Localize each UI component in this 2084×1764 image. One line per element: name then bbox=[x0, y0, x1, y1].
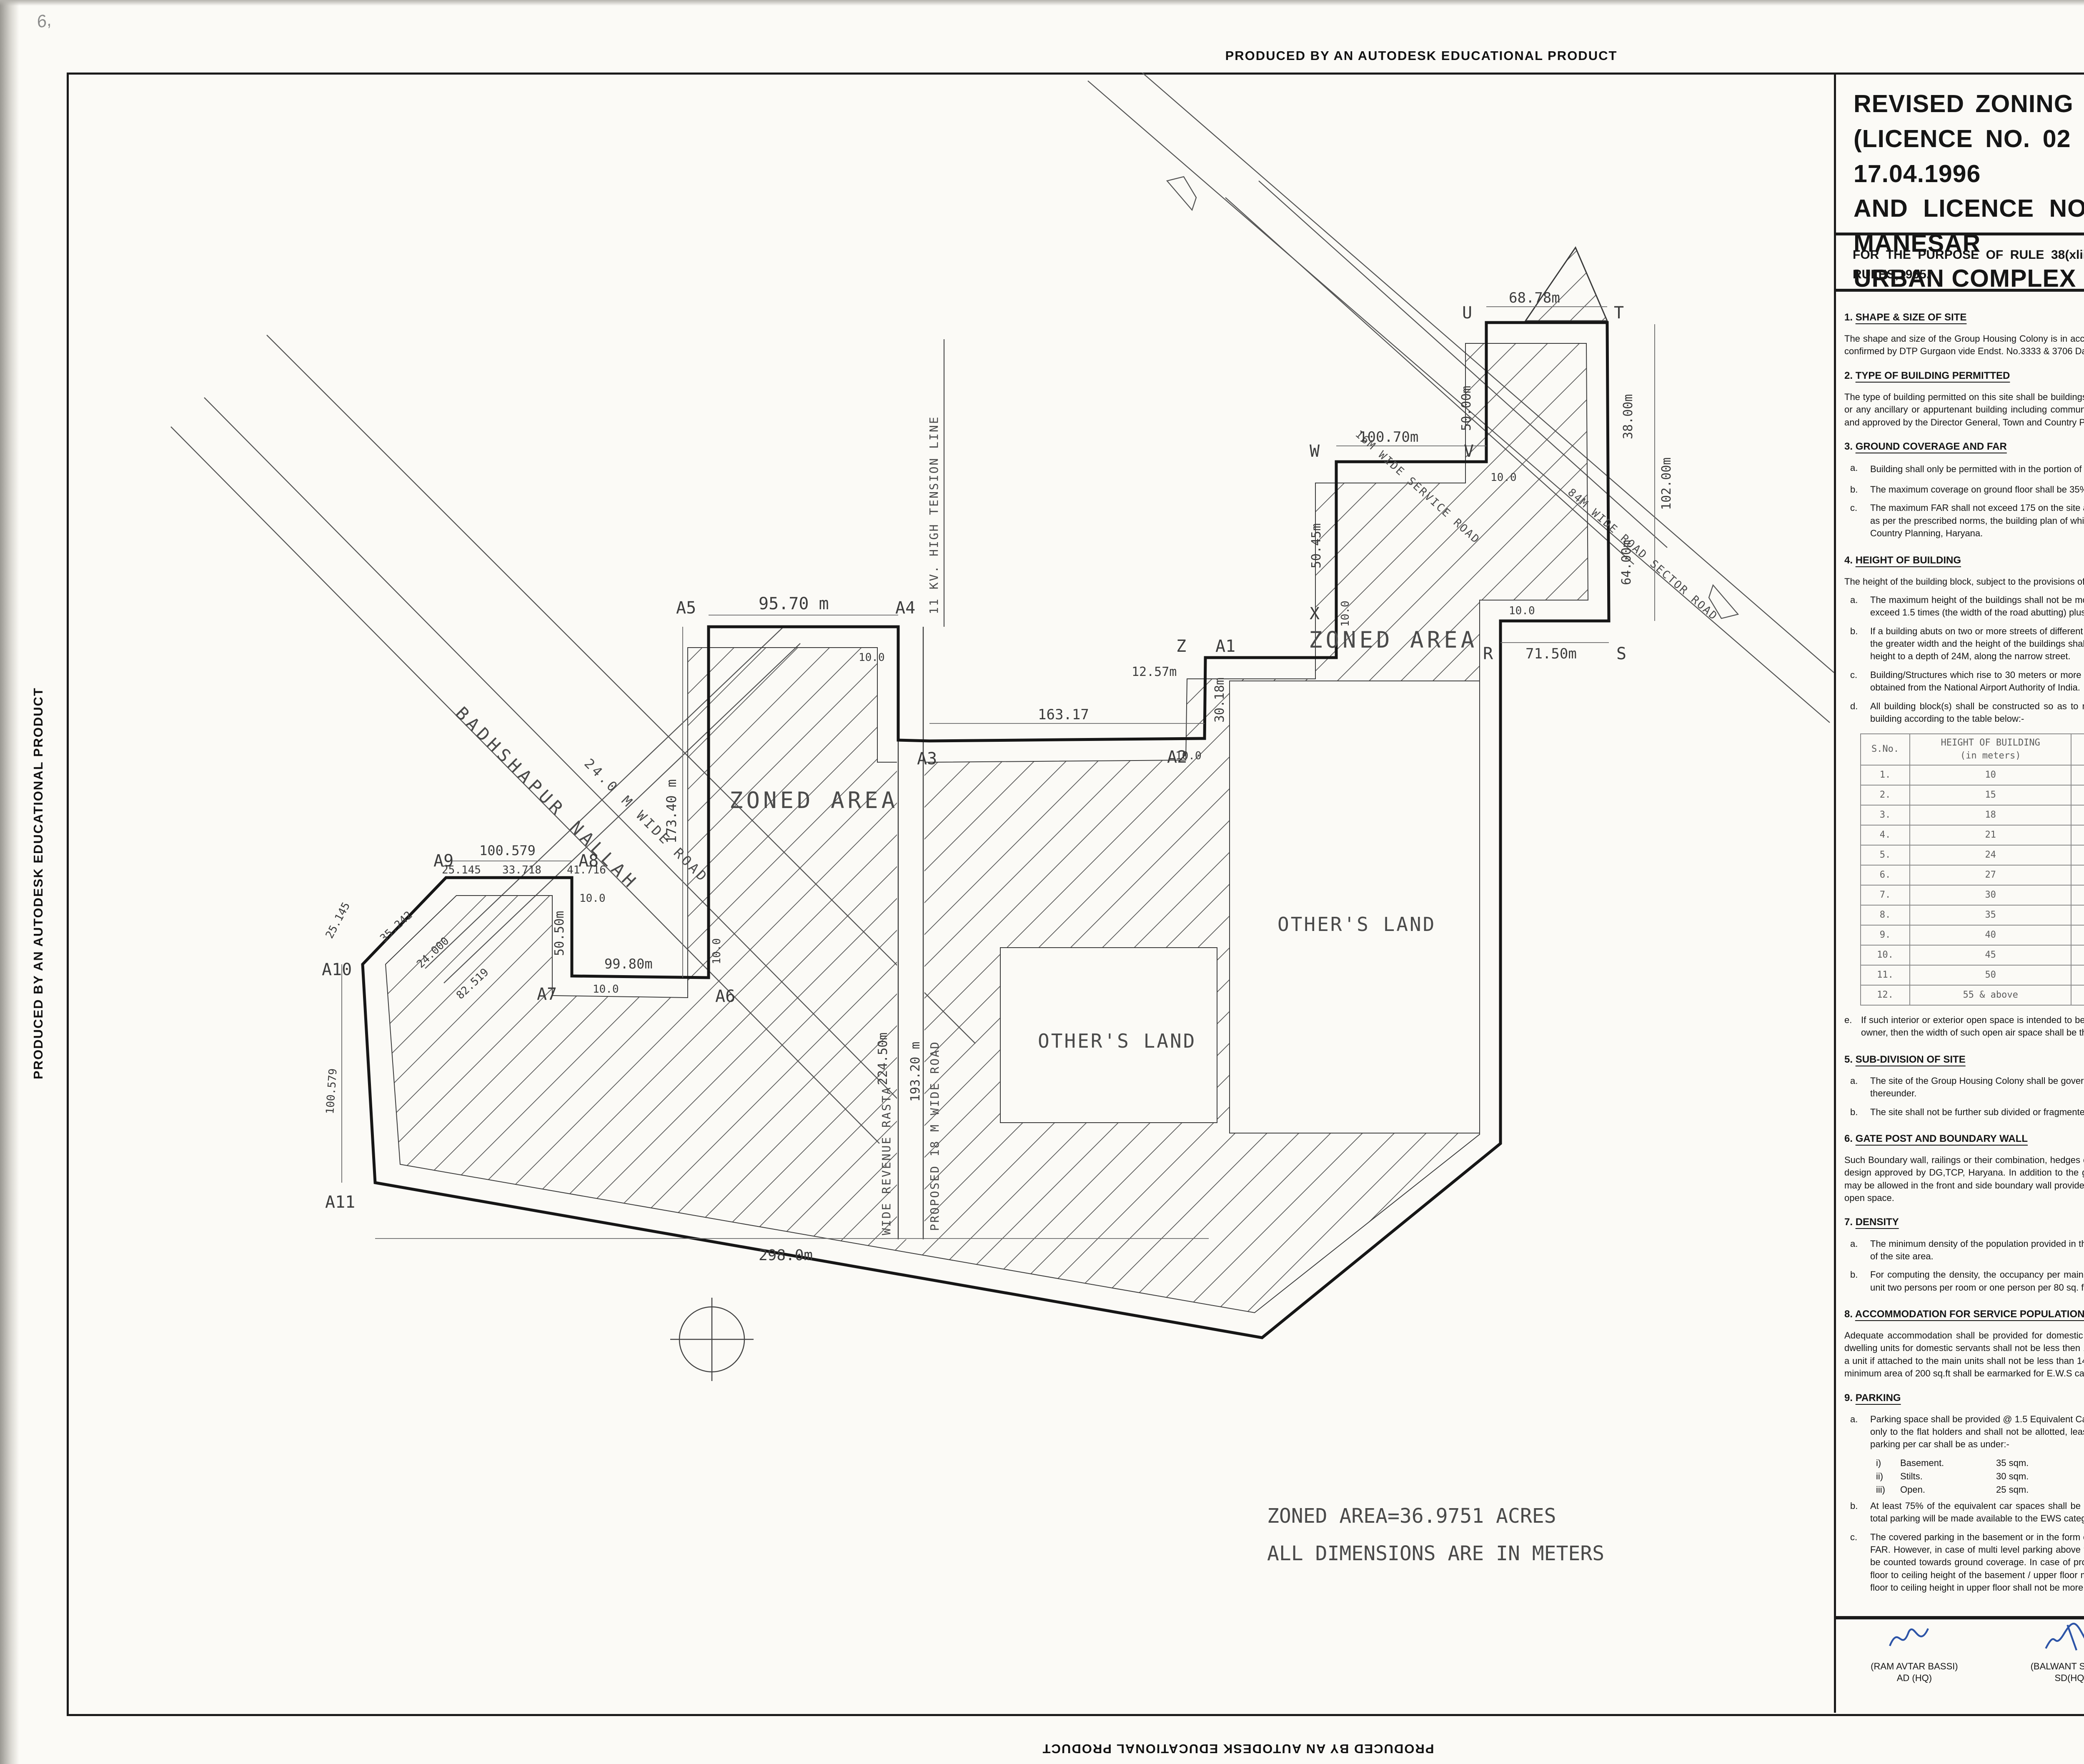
setback-label: 10.0 bbox=[711, 938, 723, 964]
section-1: 1. SHAPE & SIZE OF SITE The shape and si… bbox=[1844, 310, 2084, 358]
scan-artifact bbox=[0, 0, 19, 1764]
proposed-road-corridor bbox=[897, 627, 924, 1239]
point-t: T bbox=[1614, 303, 1624, 323]
point-v: V bbox=[1464, 442, 1474, 461]
point-a3: A3 bbox=[917, 749, 937, 768]
dim-298-0: 298.0m bbox=[759, 1247, 813, 1264]
divider bbox=[1836, 289, 2084, 292]
table-row: 11.5014 bbox=[1861, 965, 2084, 985]
dim-95-70: 95.70 m bbox=[759, 594, 829, 613]
signatory-title: SD(HQ) bbox=[1993, 1673, 2084, 1684]
purpose-statement: FOR THE PURPOSE OF RULE 38(xlii) AND 48 … bbox=[1836, 235, 2084, 289]
section-paragraph: The type of building permitted on this s… bbox=[1844, 391, 2084, 429]
others-land-label: OTHER'S LAND bbox=[1038, 1030, 1196, 1052]
dim-224-50: 224.50m bbox=[876, 1033, 890, 1085]
section-3: 3. GROUND COVERAGE AND FAR a. Building s… bbox=[1844, 440, 2084, 543]
table-row: 9.4012 bbox=[1861, 925, 2084, 945]
point-a10: A10 bbox=[322, 960, 352, 979]
point-a7: A7 bbox=[537, 985, 557, 1004]
table-row: 12.55 & above16 bbox=[1861, 985, 2084, 1005]
section-heading: GATE POST AND BOUNDARY WALL bbox=[1856, 1133, 2028, 1144]
dim-50-50: 50.50m bbox=[552, 911, 567, 956]
dim-25-145-v: 25.145 bbox=[323, 900, 353, 941]
point-a4: A4 bbox=[895, 598, 915, 618]
proposed-road-label: PROPOSED 18 M WIDE ROAD bbox=[928, 1041, 942, 1231]
dim-100-70: 100.70m bbox=[1359, 429, 1418, 445]
setback-label: 10.0 bbox=[1490, 471, 1517, 484]
point-x: X bbox=[1310, 604, 1320, 623]
table-row: 2.155 bbox=[1861, 785, 2084, 805]
point-w: W bbox=[1310, 442, 1320, 461]
notes-column-left: 1. SHAPE & SIZE OF SITE The shape and si… bbox=[1844, 300, 2084, 1612]
section-4: 4. HEIGHT OF BUILDING The height of the … bbox=[1844, 553, 2084, 1042]
signatory-name: (RAM AVTAR BASSI) bbox=[1836, 1661, 1993, 1672]
parking-sub-item: ii)Stilts.30 sqm. bbox=[1844, 1470, 2084, 1483]
dim-30-18: 30.18m bbox=[1212, 678, 1227, 723]
zoned-area-label: ZONED AREA bbox=[1309, 627, 1478, 653]
table-row: 4.217 bbox=[1861, 825, 2084, 845]
dim-50-45: 50.45m bbox=[1309, 523, 1324, 568]
table-row: 3.186 bbox=[1861, 805, 2084, 825]
point-r: R bbox=[1483, 644, 1493, 663]
section-paragraph: The shape and size of the Group Housing … bbox=[1844, 333, 2084, 358]
signatory-name: (BALWANT SINGH) bbox=[1993, 1661, 2084, 1672]
section-heading: SUB-DIVISION OF SITE bbox=[1856, 1054, 1966, 1065]
section-heading: DENSITY bbox=[1856, 1216, 1899, 1228]
others-land-label: OTHER'S LAND bbox=[1277, 913, 1436, 936]
point-u: U bbox=[1462, 303, 1472, 323]
setback-label: 10.0 bbox=[579, 892, 606, 905]
dim-12-57: 12.57m bbox=[1132, 665, 1177, 679]
scan-artifact bbox=[0, 0, 2084, 6]
setback-label: 10.0 bbox=[859, 651, 885, 664]
section-6: 6. GATE POST AND BOUNDARY WALL Such Boun… bbox=[1844, 1132, 2084, 1205]
dim-102-00: 102.00m bbox=[1659, 458, 1674, 510]
section-heading: ACCOMMODATION FOR SERVICE POPULATION bbox=[1855, 1309, 2084, 1320]
buildable-zone-spike bbox=[1525, 248, 1607, 321]
dim-68-78: 68.78m bbox=[1509, 290, 1560, 306]
divider bbox=[1836, 233, 2084, 235]
dim-38-00: 38.00m bbox=[1621, 394, 1636, 439]
section-9: 9. PARKING a.Parking space shall be prov… bbox=[1844, 1391, 2084, 1597]
setback-table: S.No. HEIGHT OF BUILDING(in meters) SET … bbox=[1860, 733, 2084, 1006]
zoned-area-label: ZONED AREA bbox=[729, 787, 898, 813]
table-row: 1.103 bbox=[1861, 765, 2084, 785]
dim-99-80: 99.80m bbox=[604, 956, 653, 972]
table-row: 6.279 bbox=[1861, 865, 2084, 885]
point-a6: A6 bbox=[715, 987, 735, 1006]
section-heading: SHAPE & SIZE OF SITE bbox=[1856, 312, 1967, 323]
table-row: 10.4513 bbox=[1861, 945, 2084, 965]
survey-symbol bbox=[670, 1298, 754, 1381]
setback-label: 10.0 bbox=[593, 983, 619, 996]
signature-squiggle bbox=[2031, 1618, 2084, 1661]
section-7: 7. DENSITY a.The minimum density of the … bbox=[1844, 1215, 2084, 1296]
autodesk-banner-bottom: PRODUCED BY AN AUTODESK EDUCATIONAL PROD… bbox=[1009, 1741, 1467, 1756]
point-a2: A2 bbox=[1167, 748, 1187, 767]
table-row: 7.3010 bbox=[1861, 885, 2084, 905]
section-2: 2. TYPE OF BUILDING PERMITTED The type o… bbox=[1844, 369, 2084, 429]
setback-label: 10.0 bbox=[1509, 605, 1535, 617]
point-a9: A9 bbox=[433, 851, 453, 871]
signature-cell: (RAM AVTAR BASSI) AD (HQ) bbox=[1836, 1616, 1993, 1713]
dim-100-579: 100.579 bbox=[479, 843, 536, 858]
section-heading: PARKING bbox=[1856, 1392, 1901, 1404]
autodesk-banner-left: PRODUCED BY AN AUTODESK EDUCATIONAL PROD… bbox=[31, 687, 46, 1079]
dim-71-50: 71.50m bbox=[1525, 646, 1577, 662]
signatory-title: AD (HQ) bbox=[1836, 1673, 1993, 1684]
point-a11: A11 bbox=[325, 1193, 355, 1212]
signature-block: (RAM AVTAR BASSI) AD (HQ) (BALWANT SINGH… bbox=[1836, 1616, 2084, 1713]
revenue-rasta-label: WIDE REVENUE RASTA bbox=[879, 1086, 893, 1235]
table-row: 5.248 bbox=[1861, 845, 2084, 865]
dimensions-note: ALL DIMENSIONS ARE IN METERS bbox=[1267, 1542, 1604, 1565]
section-8: 8. ACCOMMODATION FOR SERVICE POPULATION … bbox=[1844, 1307, 2084, 1380]
section-heading: HEIGHT OF BUILDING bbox=[1856, 555, 1961, 566]
notes-panel: REVISED ZONING PLAN OF GROUP HOUSING COL… bbox=[1834, 73, 2084, 1713]
pencil-mark: 6, bbox=[35, 10, 53, 32]
section-5: 5. SUB-DIVISION OF SITE a.The site of th… bbox=[1844, 1053, 2084, 1121]
point-a8: A8 bbox=[579, 851, 599, 871]
dim-163-17: 163.17 bbox=[1038, 706, 1089, 723]
zoned-area-total: ZONED AREA=36.9751 ACRES bbox=[1267, 1504, 1556, 1528]
signature-cell: (BALWANT SINGH) SD(HQ) bbox=[1993, 1616, 2084, 1713]
table-row: 8.3511 bbox=[1861, 905, 2084, 925]
section-heading: TYPE OF BUILDING PERMITTED bbox=[1856, 370, 2010, 381]
drawing-sheet: 6, PRODUCED BY AN AUTODESK EDUCATIONAL P… bbox=[0, 0, 2084, 1764]
dim-35-242: 35.242 bbox=[378, 909, 415, 945]
dim-193-20: 193.20 m bbox=[908, 1042, 923, 1102]
setback-label: 10.0 bbox=[1339, 601, 1352, 627]
parking-sub-item: i)Basement.35 sqm. bbox=[1844, 1457, 2084, 1469]
dim-173-40: 173.40 m bbox=[664, 779, 679, 843]
point-a1: A1 bbox=[1215, 637, 1235, 656]
dim-64-00: 64.00m bbox=[1619, 540, 1634, 585]
dim-50-00: 50.00m bbox=[1459, 386, 1474, 431]
dim-100-579-v: 100.579 bbox=[324, 1068, 340, 1114]
point-a5: A5 bbox=[676, 598, 696, 618]
site-plan: ZONED AREA ZONED AREA OTHER'S LAND OTHER… bbox=[67, 73, 1834, 1713]
autodesk-banner-top: PRODUCED BY AN AUTODESK EDUCATIONAL PROD… bbox=[1192, 48, 1651, 63]
dim-33-718: 33.718 bbox=[502, 864, 541, 876]
signature-squiggle bbox=[1875, 1618, 1954, 1661]
section-heading: GROUND COVERAGE AND FAR bbox=[1856, 441, 2007, 452]
drawing-title: REVISED ZONING PLAN OF GROUP HOUSING COL… bbox=[1836, 73, 2084, 233]
high-tension-line-label: 11 KV. HIGH TENSION LINE bbox=[927, 415, 941, 614]
point-z: Z bbox=[1176, 637, 1186, 656]
parking-sub-item: iii)Open.25 sqm. bbox=[1844, 1484, 2084, 1496]
point-s: S bbox=[1616, 644, 1626, 663]
